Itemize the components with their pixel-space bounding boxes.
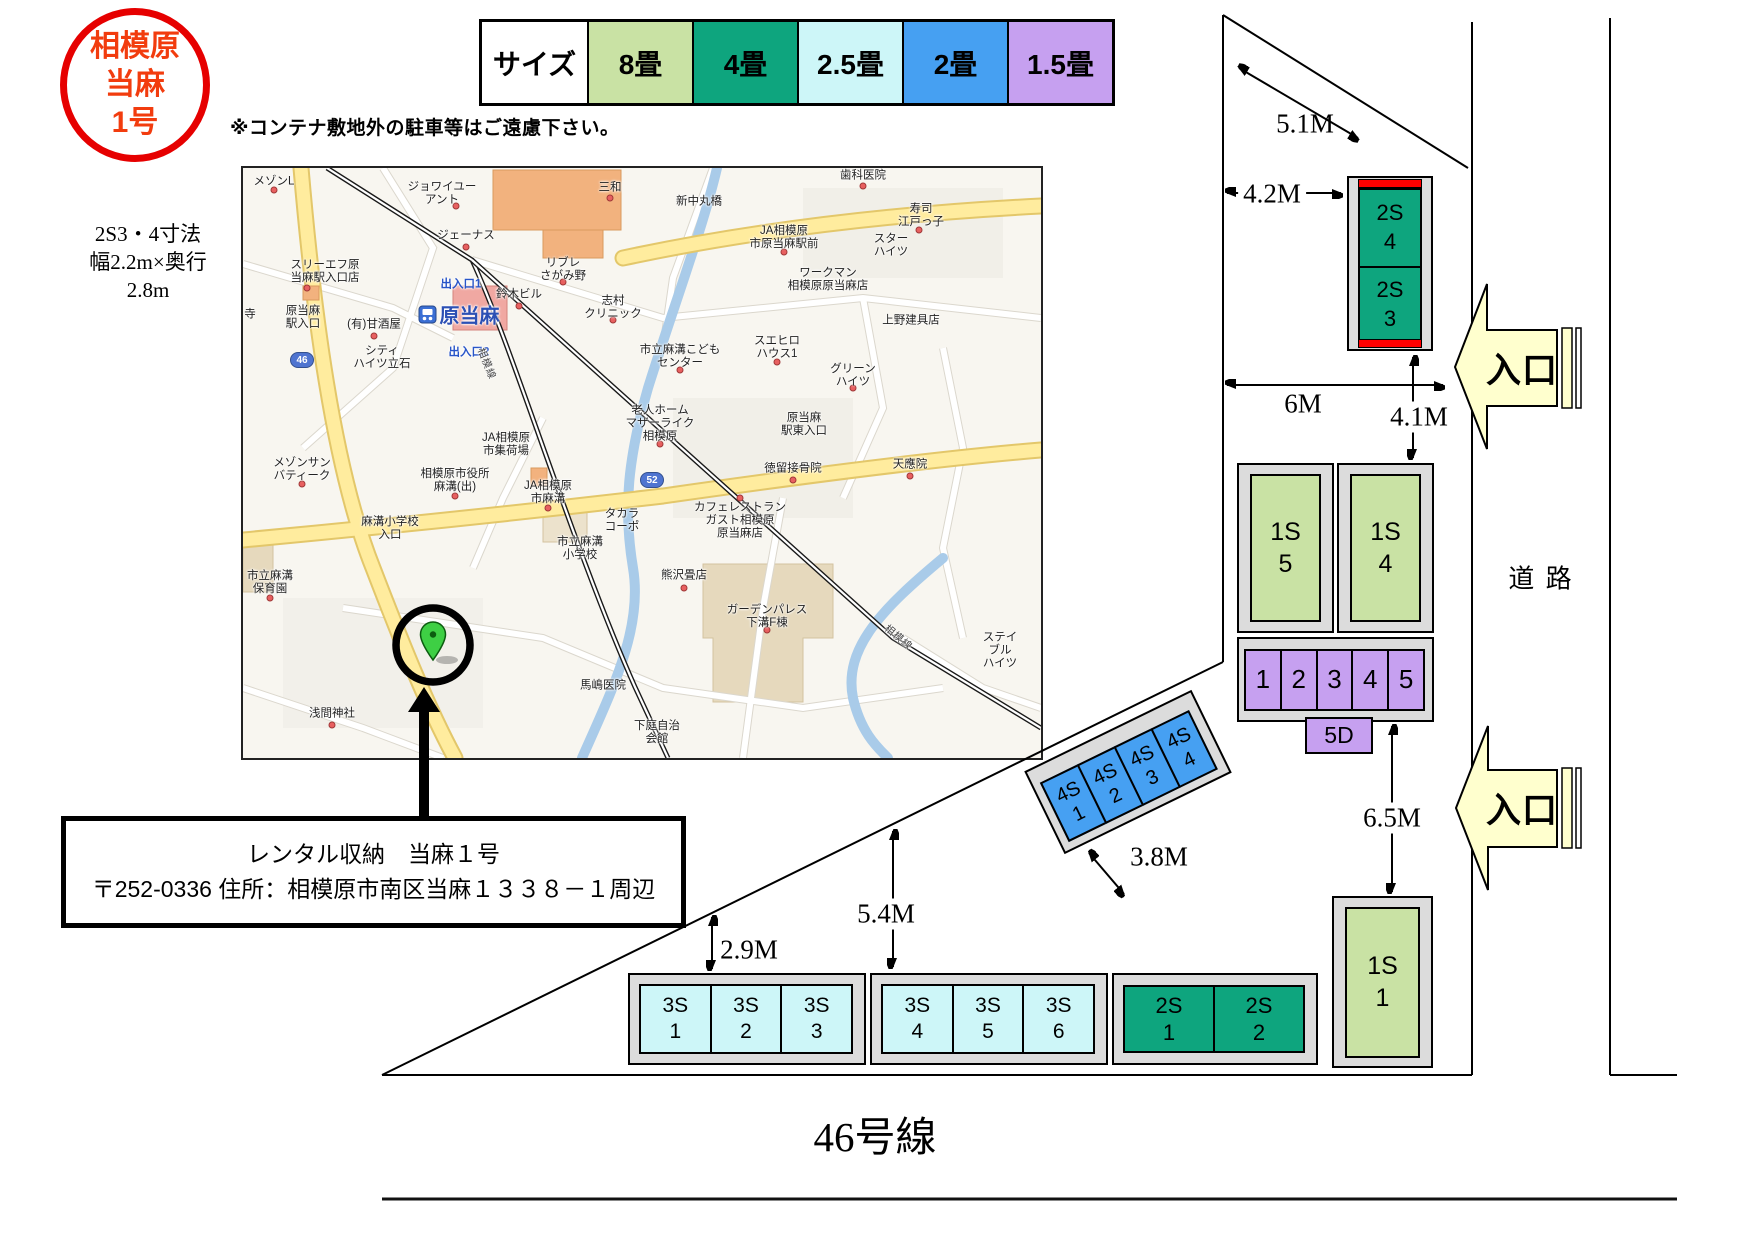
address-box: レンタル収納 当麻１号 〒252-0336 住所：相模原市南区当麻１３３８－１周… (61, 816, 686, 928)
station-label: 原当麻 (419, 300, 500, 329)
map-label: ガーデンパレス 下溝F棟 (727, 604, 808, 630)
map-label: 志村 クリニック (584, 295, 642, 321)
map-label: 市立麻溝こども センター (640, 344, 721, 370)
legend-item: 2畳 (902, 22, 1007, 103)
measure-4-2m: 4.2M (1238, 179, 1306, 210)
poi-dot (463, 244, 470, 251)
storage-unit: 2S2 (1213, 985, 1305, 1053)
map-label: 寺 (244, 309, 256, 322)
entrance-label-bottom: 入口 (1486, 783, 1558, 834)
map-label: スリーエフ原 当麻駅入口店 (291, 259, 360, 285)
map-label: スター ハイツ (874, 233, 909, 259)
container-block-3s456: 3S4 3S5 3S6 (870, 973, 1108, 1065)
facility-address: 〒252-0336 住所：相模原市南区当麻１３３８－１周辺 (92, 872, 656, 907)
map-label: 下庭自治 会館 (634, 720, 680, 746)
map-label: タカラ コーポ (605, 508, 640, 534)
poi-dot (737, 495, 744, 502)
legend-item: 1.5畳 (1007, 22, 1112, 103)
badge-line2: 当麻 (67, 66, 203, 104)
container-block-3s123: 3S1 3S2 3S3 (628, 973, 866, 1065)
storage-unit: 1S5 (1250, 474, 1321, 622)
map-label: 上野建具店 (882, 315, 940, 328)
dims-line1: 2S3・4寸法 (48, 220, 248, 248)
poi-dot (371, 333, 378, 340)
map-label: 出入口1 (441, 279, 482, 292)
map-label: 三和 (599, 182, 622, 195)
dims-line2: 幅2.2m×奥行 (48, 248, 248, 276)
map-label: (有)甘酒屋 (347, 319, 401, 332)
container-block-4s: 4S1 4S2 4S3 4S4 (1024, 690, 1232, 854)
storage-unit: 2S3 (1358, 266, 1422, 344)
map-label: グリーン ハイツ (830, 363, 875, 389)
gate-bar (1576, 328, 1581, 408)
map-label: メゾンL (254, 176, 295, 189)
storage-unit: 2S1 (1123, 985, 1215, 1053)
measure-6m: 6M (1284, 389, 1322, 420)
storage-unit: 3S6 (1022, 984, 1095, 1054)
storage-unit: 3S5 (952, 984, 1025, 1054)
map-label: 歯科医院 (840, 170, 886, 183)
map-label: 寿司 江戸っ子 (898, 203, 944, 229)
storage-unit: 3S1 (639, 984, 712, 1054)
map-label: 熊沢畳店 (661, 570, 707, 583)
size-legend-table: サイズ 8畳4畳2.5畳2畳1.5畳 (479, 19, 1115, 106)
poi-dot (907, 473, 914, 480)
arrow-3-8m (1089, 853, 1124, 894)
map-label: メゾンサン バティーク (273, 457, 331, 483)
route-52-badge: 52 (640, 472, 664, 488)
map-label: リブレ さがみ野 (540, 257, 586, 283)
container-dimensions-note: 2S3・4寸法 幅2.2m×奥行 2.8m (48, 220, 248, 304)
red-door-strip (1358, 339, 1422, 348)
gate-bar (1562, 328, 1572, 408)
parking-caution-note: ※コンテナ敷地外の駐車等はご遠慮下さい。 (230, 113, 619, 140)
poi-dot (860, 183, 867, 190)
container-block-2s34: 2S4 2S3 (1347, 176, 1433, 351)
legend-item: 8畳 (587, 22, 692, 103)
map-label: シティ ハイツ立石 (353, 345, 410, 371)
route-46-label: 46号線 (814, 1103, 937, 1163)
map-label: 徳留接骨院 (764, 463, 822, 476)
measure-5-1m: 5.1M (1276, 109, 1334, 140)
parking-space: 3 (1316, 649, 1354, 711)
map-label: 天應院 (893, 459, 928, 472)
measure-2-9m: 2.9M (720, 935, 778, 966)
route-46-badge: 46 (290, 352, 314, 368)
parking-space: 4 (1351, 649, 1389, 711)
facility-name: レンタル収納 当麻１号 (247, 837, 500, 872)
map-label: JA相模原 市集荷場 (482, 432, 530, 458)
map-label: カフェレストラン ガスト相模原 原当麻店 (694, 502, 786, 541)
legend-items: 8畳4畳2.5畳2畳1.5畳 (587, 22, 1112, 103)
measure-6-5m: 6.5M (1358, 803, 1426, 834)
map-label: 麻溝小学校 入口 (361, 516, 419, 542)
road-label: 道 路 (1508, 559, 1573, 596)
storage-unit: 1S4 (1350, 474, 1421, 622)
parking-space: 5 (1387, 649, 1425, 711)
map-label: ステイブル ハイツ (980, 632, 1021, 671)
map-label: 原当麻 駅入口 (286, 305, 321, 331)
map-label: 鈴木ビル (496, 289, 542, 302)
map-label: 浅間神社 (309, 708, 355, 721)
map-label: 市立麻溝 小学校 (557, 536, 603, 562)
map-label: スエヒロ ハウス1 (754, 335, 800, 361)
unit-frame: 1S4 (1337, 463, 1434, 633)
measure-5-4m: 5.4M (852, 899, 920, 930)
map-label: 相模原市役所 麻溝(出) (421, 468, 490, 494)
site-badge: 相模原 当麻 1号 (60, 8, 210, 162)
parking-space: 1 (1244, 649, 1282, 711)
map-label: JA相模原 市麻溝 (524, 480, 572, 506)
map-label: ワークマン 相模原原当麻店 (788, 267, 869, 293)
storage-unit: 3S4 (881, 984, 954, 1054)
map-label: 原当麻 駅東入口 (781, 412, 827, 438)
storage-site-flyer: 相模原 当麻 1号 2S3・4寸法 幅2.2m×奥行 2.8m ※コンテナ敷地外… (0, 0, 1755, 1241)
poi-dot (304, 285, 311, 292)
gate-bar (1576, 768, 1581, 848)
storage-unit: 2S4 (1358, 188, 1422, 268)
map-label: ジョワイユー アント (408, 181, 477, 207)
entrance-label-top: 入口 (1486, 343, 1558, 394)
container-block-1s1: 1S 1 (1332, 896, 1433, 1068)
map-label: JA相模原 市原当麻駅前 (750, 225, 819, 251)
map-label: 馬嶋医院 (580, 680, 626, 693)
container-block-2s12: 2S1 2S2 (1112, 973, 1318, 1065)
storage-unit: 1S 1 (1345, 907, 1420, 1058)
unit-frame: 1S5 (1237, 463, 1334, 633)
storage-unit: 3S3 (780, 984, 853, 1054)
legend-header: サイズ (482, 22, 587, 103)
storage-unit: 3S2 (710, 984, 783, 1054)
poi-dot (790, 477, 797, 484)
badge-line3: 1号 (67, 104, 203, 142)
poi-dot (516, 303, 523, 310)
station-name: 原当麻 (440, 300, 500, 329)
legend-item: 4畳 (692, 22, 797, 103)
dims-line3: 2.8m (48, 276, 248, 304)
legend-item: 2.5畳 (797, 22, 902, 103)
measure-3-8m: 3.8M (1130, 842, 1188, 873)
container-block-1s54: 1S5 1S4 (1237, 463, 1434, 633)
parking-row: 12345 (1237, 637, 1434, 722)
poi-dot (607, 195, 614, 202)
poi-dot (681, 585, 688, 592)
unit-5d: 5D (1305, 717, 1373, 754)
poi-dot (329, 722, 336, 729)
map-label: 老人ホーム マザーライク 相模原 (626, 405, 695, 444)
map-label: 市立麻溝 保育園 (247, 570, 293, 596)
map-label: 新中丸橋 (676, 196, 722, 209)
red-door-strip (1358, 179, 1422, 188)
badge-line1: 相模原 (67, 28, 203, 66)
map-label: ジェーナス (437, 230, 495, 243)
parking-space: 2 (1280, 649, 1318, 711)
area-map: メゾンLジョワイユー アントジェーナス三和新中丸橋歯科医院寿司 江戸っ子スター … (241, 166, 1043, 760)
gate-bar (1562, 768, 1572, 848)
train-station-icon (419, 305, 437, 323)
measure-4-1m: 4.1M (1385, 402, 1453, 433)
